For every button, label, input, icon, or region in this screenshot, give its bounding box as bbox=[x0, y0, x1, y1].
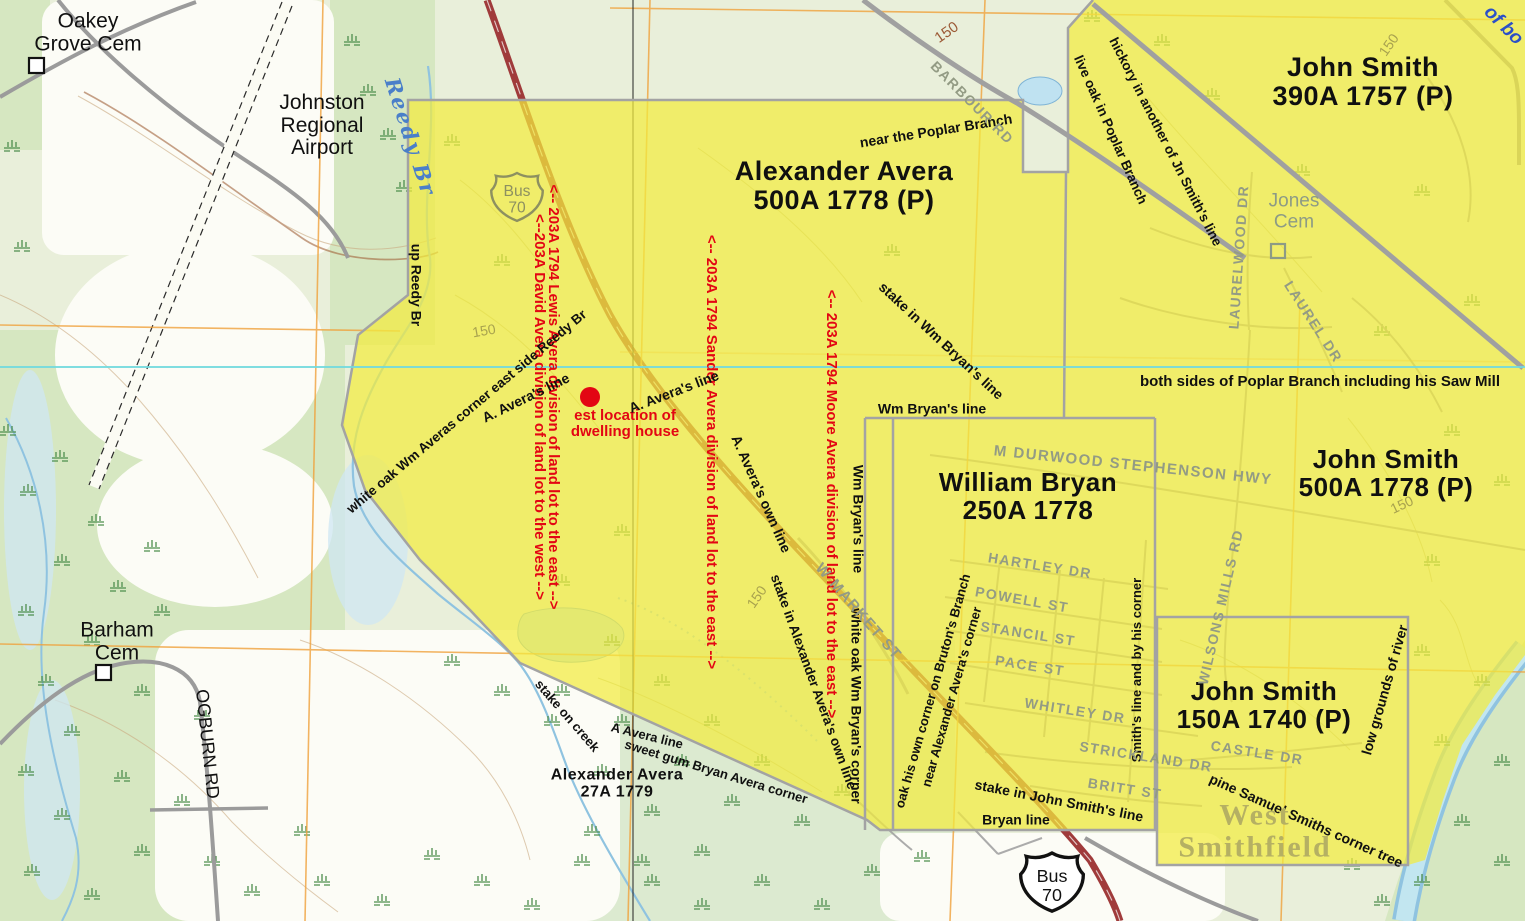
parcel-label-smith500: John Smith 500A 1778 (P) bbox=[1299, 445, 1474, 501]
street-label-strickland-dr: STRICKLAND DR bbox=[1078, 739, 1213, 775]
street-label-hartley-dr: HARTLEY DR bbox=[987, 550, 1093, 581]
street-label-laurelwood-dr: LAURELWOOD DR bbox=[1226, 184, 1251, 329]
place-label-barham-cem: Barham Cem bbox=[80, 619, 154, 664]
annotation-stake-on-creek: stake on creek bbox=[532, 677, 602, 754]
street-label-britt-st: BRITT ST bbox=[1087, 776, 1163, 803]
place-label-jones-cem: Jones Cem bbox=[1269, 191, 1320, 232]
annotation-stake-wm-bryan: stake in Wm Bryan's line bbox=[876, 279, 1007, 402]
parcel-label-avera27: Alexander Avera 27A 1779 bbox=[551, 767, 684, 802]
place-label-oakey-grove-cem: Oakey Grove Cem bbox=[34, 10, 141, 55]
parcel-label-bryan250: William Bryan 250A 1778 bbox=[939, 468, 1117, 524]
parcel-label-smith390: John Smith 390A 1757 (P) bbox=[1272, 53, 1453, 111]
street-label-whitley-dr: WHITLEY DR bbox=[1024, 696, 1127, 727]
map-canvas: Bus 70 Bus 70 Alexander Avera 500A 1778 … bbox=[0, 0, 1525, 921]
street-label-stancil-st: STANCIL ST bbox=[979, 619, 1076, 649]
annotation-david-division: <--203A David Avera division of land lot… bbox=[531, 214, 547, 600]
street-label-pace-st: PACE ST bbox=[994, 653, 1066, 679]
place-label-ogburn-rd: OGBURN RD bbox=[192, 688, 223, 799]
parcel-label-smith150: John Smith 150A 1740 (P) bbox=[1177, 677, 1352, 733]
street-label-laurel-dr: LAUREL DR bbox=[1281, 278, 1345, 365]
annotation-sander-division: <-- 203A 1794 Sander Avera division of l… bbox=[703, 235, 719, 669]
annotation-wm-bryan-line-h: Wm Bryan's line bbox=[878, 401, 986, 416]
annotation-smiths-line-corner: Smith's line and by his corner bbox=[1130, 578, 1144, 762]
street-label-powell-st: POWELL ST bbox=[974, 584, 1070, 615]
annotation-white-oak-bryan: white oak Wm Bryan's corner bbox=[848, 608, 863, 804]
contour-label-c150-e: 150 bbox=[744, 583, 770, 611]
annotation-low-grounds: low grounds of river bbox=[1359, 623, 1411, 757]
annotation-wm-bryan-line-v: Wm Bryan's line bbox=[850, 465, 865, 573]
place-label-west-smithfield: West Smithfield bbox=[1178, 800, 1331, 865]
contour-label-c150-b: 150 bbox=[471, 322, 497, 341]
annotation-both-sides-poplar: both sides of Poplar Branch including hi… bbox=[1140, 374, 1500, 390]
map-labels: Alexander Avera 500A 1778 (P)John Smith … bbox=[0, 0, 1525, 921]
place-label-johnston-airport: Johnston Regional Airport bbox=[279, 92, 364, 160]
water-label-reedy-br: Reedy Br bbox=[380, 75, 440, 199]
annotation-avera-own-line: A. Avera's own line bbox=[728, 433, 793, 555]
annotation-bryan-line: Bryan line bbox=[982, 812, 1050, 827]
water-label-of-bo: of bo bbox=[1479, 2, 1525, 49]
annotation-dwelling-house: est location of dwelling house bbox=[571, 408, 679, 440]
street-label-wilsons-mills-rd: WILSONS MILLS RD bbox=[1196, 528, 1247, 687]
contour-label-c150-a: 150 bbox=[932, 19, 962, 47]
annotation-up-reedy-br: up Reedy Br bbox=[408, 244, 423, 326]
parcel-label-avera500: Alexander Avera 500A 1778 (P) bbox=[735, 157, 954, 215]
annotation-moore-division: <-- 203A 1794 Moore Avera division of la… bbox=[823, 290, 839, 718]
street-label-castle-dr: CASTLE DR bbox=[1210, 738, 1305, 768]
